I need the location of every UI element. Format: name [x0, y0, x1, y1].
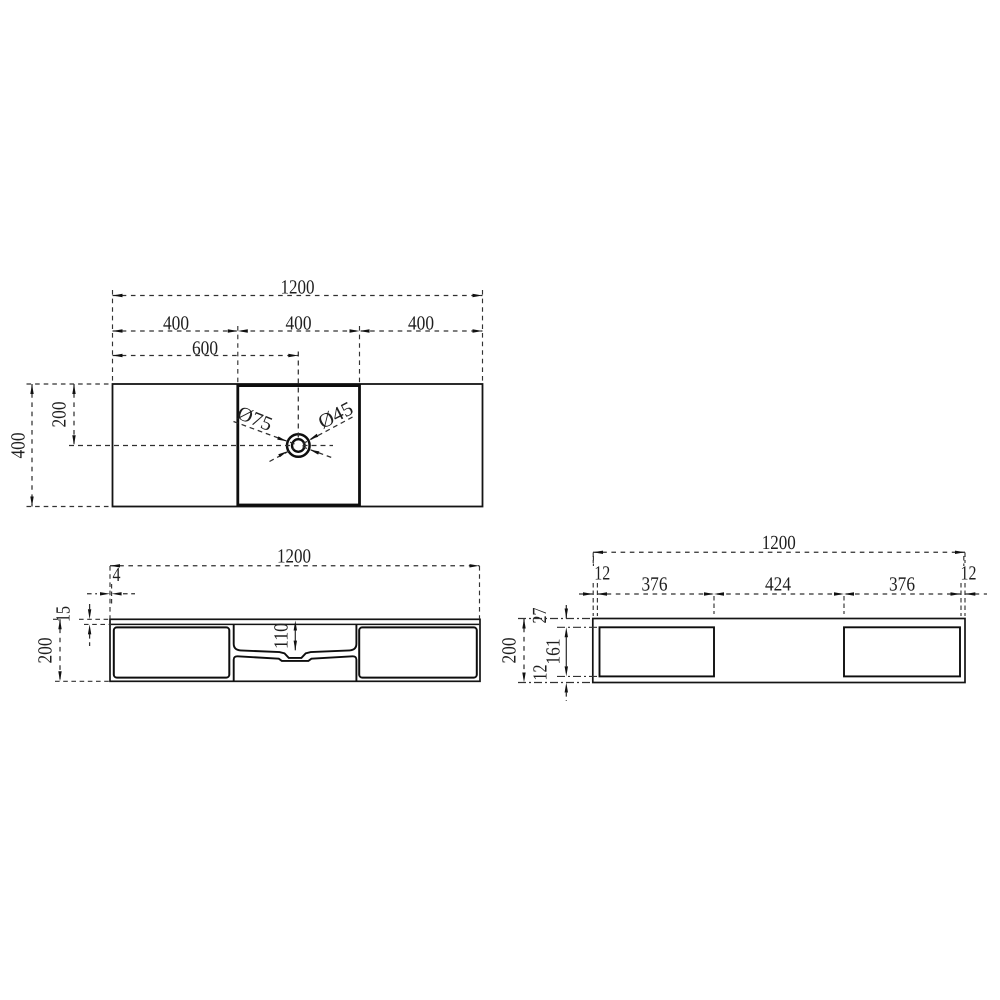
svg-text:400: 400 — [8, 433, 30, 459]
svg-text:1200: 1200 — [762, 532, 796, 554]
svg-text:1200: 1200 — [277, 546, 311, 568]
svg-text:200: 200 — [35, 638, 57, 664]
svg-text:424: 424 — [765, 574, 791, 596]
svg-text:12: 12 — [594, 563, 610, 585]
svg-text:27: 27 — [529, 608, 551, 624]
svg-text:376: 376 — [642, 574, 668, 596]
svg-text:4: 4 — [113, 564, 121, 586]
svg-text:400: 400 — [286, 313, 312, 335]
svg-text:1200: 1200 — [281, 277, 315, 299]
svg-text:12: 12 — [961, 563, 977, 585]
svg-text:110: 110 — [271, 623, 293, 649]
svg-text:400: 400 — [408, 313, 434, 335]
svg-text:600: 600 — [192, 338, 218, 360]
svg-text:400: 400 — [163, 313, 189, 335]
svg-text:12: 12 — [530, 665, 552, 681]
svg-text:376: 376 — [889, 574, 915, 596]
svg-text:200: 200 — [499, 638, 521, 664]
svg-text:161: 161 — [543, 639, 565, 665]
svg-text:200: 200 — [49, 402, 71, 428]
